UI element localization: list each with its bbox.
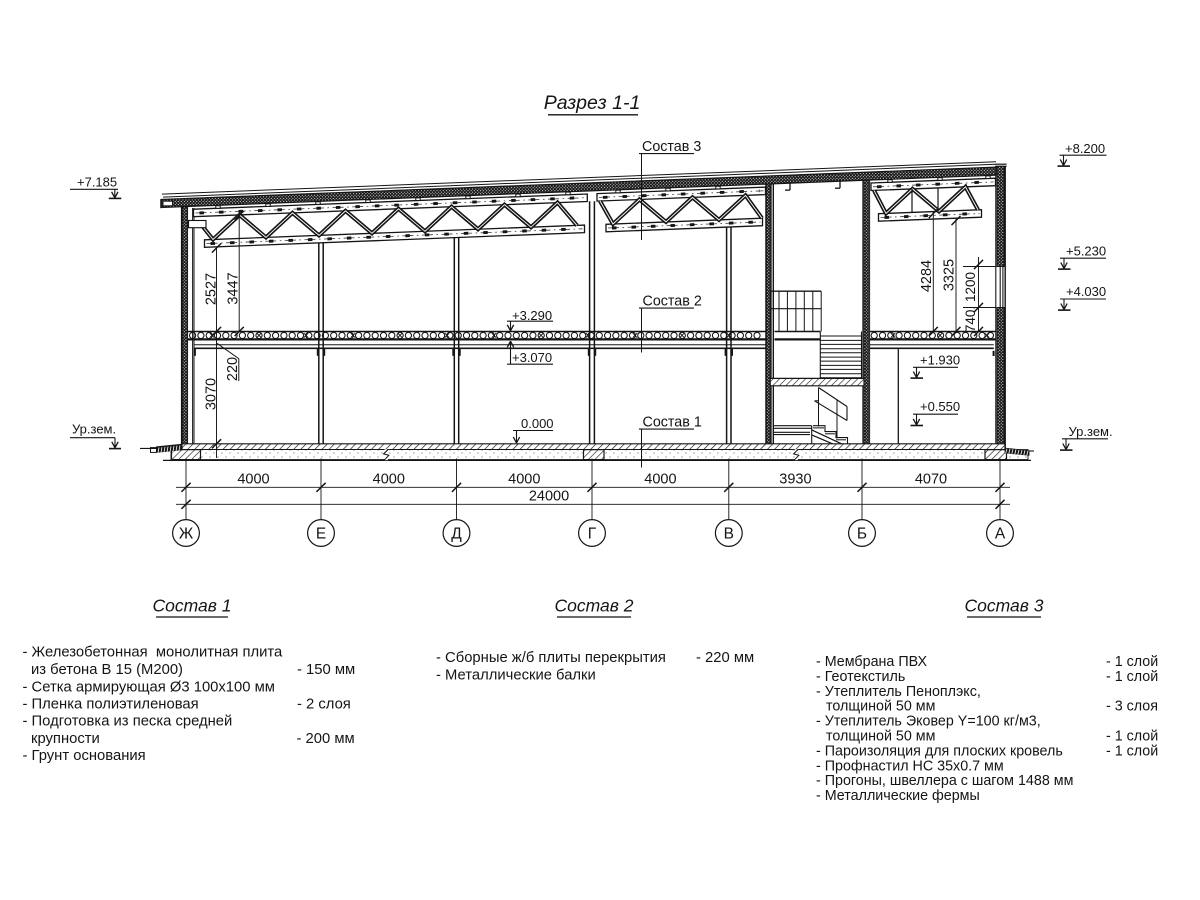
svg-text:- Утеплитель Эковер Y=100 кг/м: - Утеплитель Эковер Y=100 кг/м3, <box>816 714 1041 730</box>
svg-text:- Подготовка из песка средней: - Подготовка из песка средней <box>23 714 233 730</box>
svg-text:Ур.зем.: Ур.зем. <box>1069 424 1113 439</box>
svg-text:- 1 слой: - 1 слой <box>1106 743 1158 759</box>
svg-text:- Профнастил НС 35х0.7 мм: - Профнастил НС 35х0.7 мм <box>816 758 1004 774</box>
svg-text:+5.230: +5.230 <box>1066 243 1106 258</box>
svg-text:- 1 слой: - 1 слой <box>1106 654 1158 670</box>
svg-text:+0.550: +0.550 <box>920 399 960 414</box>
svg-text:3070: 3070 <box>204 378 220 410</box>
svg-text:- Мембрана ПВХ: - Мембрана ПВХ <box>816 654 928 670</box>
svg-text:- 1 слой: - 1 слой <box>1106 729 1158 745</box>
svg-text:+4.030: +4.030 <box>1066 284 1106 299</box>
svg-text:толщиной 50 мм: толщиной 50 мм <box>826 729 935 745</box>
svg-text:- Прогоны, швеллера с шагом 14: - Прогоны, швеллера с шагом 1488 мм <box>816 773 1073 789</box>
svg-text:4070: 4070 <box>915 472 947 488</box>
svg-text:4000: 4000 <box>373 472 405 488</box>
svg-text:А: А <box>995 525 1006 542</box>
svg-text:- 3 слоя: - 3 слоя <box>1106 699 1158 715</box>
svg-text:крупности: крупности <box>31 731 100 747</box>
svg-text:- 150 мм: - 150 мм <box>297 662 355 678</box>
svg-text:Состав 3: Состав 3 <box>965 596 1044 616</box>
svg-text:740,: 740, <box>963 306 978 332</box>
svg-text:3447: 3447 <box>226 272 242 304</box>
svg-text:Состав 1: Состав 1 <box>153 596 232 616</box>
svg-text:- Утеплитель Пеноплэкс,: - Утеплитель Пеноплэкс, <box>816 684 981 700</box>
svg-text:из бетона В 15 (М200): из бетона В 15 (М200) <box>31 662 183 678</box>
svg-text:4000: 4000 <box>508 472 540 488</box>
svg-text:2527: 2527 <box>204 273 220 305</box>
svg-text:- 1 слой: - 1 слой <box>1106 669 1158 685</box>
svg-text:Б: Б <box>857 525 867 542</box>
svg-text:Е: Е <box>316 525 326 542</box>
svg-text:- 200 мм: - 200 мм <box>297 731 355 747</box>
svg-text:- Пленка полиэтиленовая: - Пленка полиэтиленовая <box>23 697 199 713</box>
svg-text:- Пароизоляция для плоских кро: - Пароизоляция для плоских кровель <box>816 743 1063 759</box>
svg-text:4000: 4000 <box>644 472 676 488</box>
svg-text:- Сборные ж/б плиты перекрытия: - Сборные ж/б плиты перекрытия <box>436 650 666 666</box>
svg-text:4284: 4284 <box>919 260 935 292</box>
svg-text:24000: 24000 <box>529 489 569 505</box>
svg-text:Состав 1: Состав 1 <box>643 415 702 431</box>
svg-text:толщиной 50 мм: толщиной 50 мм <box>826 699 935 715</box>
svg-text:- Железобетонная монолитная п: - Железобетонная монолитная плита <box>23 645 284 661</box>
svg-text:Г: Г <box>588 525 597 542</box>
svg-text:Состав 2: Состав 2 <box>555 596 634 616</box>
svg-text:Состав 2: Состав 2 <box>643 294 702 310</box>
svg-text:- 2 слоя: - 2 слоя <box>297 697 351 713</box>
svg-text:4000: 4000 <box>237 472 269 488</box>
svg-text:3930: 3930 <box>779 472 811 488</box>
svg-text:Д: Д <box>451 525 462 542</box>
svg-text:Ур.зем.: Ур.зем. <box>72 421 116 436</box>
svg-text:- Сетка армирующая Ø3 100х100: - Сетка армирующая Ø3 100х100 мм <box>23 680 275 696</box>
svg-text:+3.290: +3.290 <box>512 308 552 323</box>
svg-text:- Геотекстиль: - Геотекстиль <box>816 669 905 685</box>
svg-text:Разрез 1-1: Разрез 1-1 <box>544 92 641 114</box>
svg-text:- Грунт основания: - Грунт основания <box>23 748 146 764</box>
svg-text:1200: 1200 <box>963 272 978 302</box>
svg-text:3325: 3325 <box>942 259 958 291</box>
svg-text:- Металлические балки: - Металлические балки <box>436 668 596 684</box>
svg-text:Ж: Ж <box>179 525 194 542</box>
svg-text:+3.070: +3.070 <box>512 350 552 365</box>
svg-text:+1.930: +1.930 <box>920 353 960 368</box>
svg-text:0.000: 0.000 <box>521 416 554 431</box>
svg-text:В: В <box>724 525 734 542</box>
svg-text:- 220 мм: - 220 мм <box>696 650 754 666</box>
svg-text:220: 220 <box>225 357 241 381</box>
svg-text:+8.200: +8.200 <box>1065 141 1105 156</box>
svg-text:Состав 3: Состав 3 <box>642 139 701 155</box>
svg-text:+7.185: +7.185 <box>77 175 117 190</box>
svg-text:- Металлические фермы: - Металлические фермы <box>816 788 980 804</box>
